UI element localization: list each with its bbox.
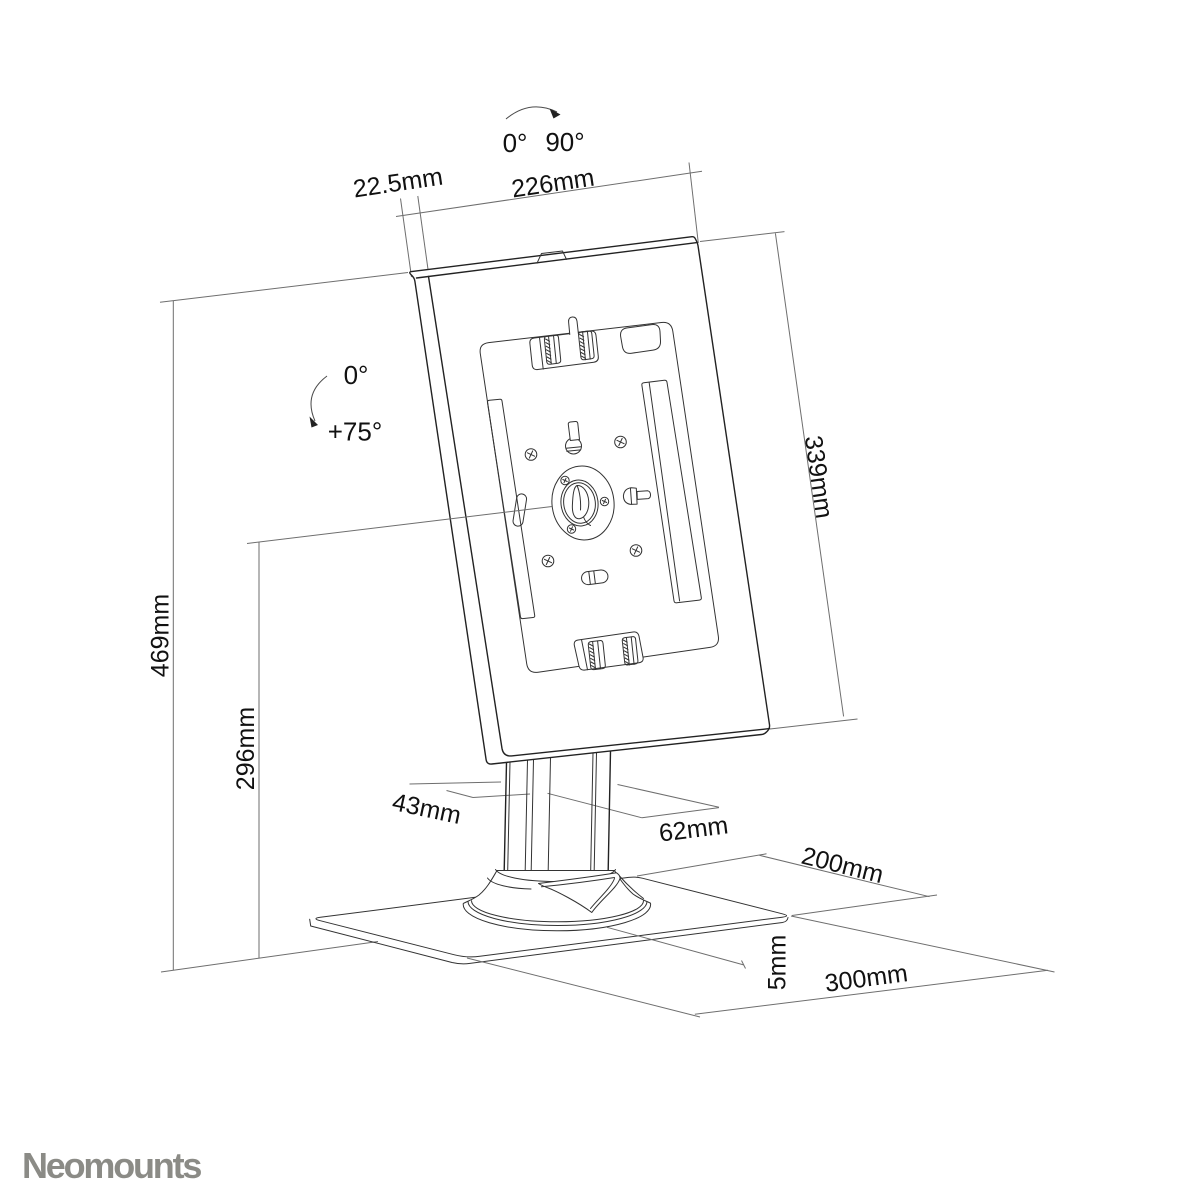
svg-text:0°: 0° [503,128,528,158]
svg-text:Neomounts: Neomounts [22,1145,201,1186]
svg-text:90°: 90° [545,127,584,157]
svg-text:296mm: 296mm [232,707,260,790]
svg-text:5mm: 5mm [764,935,792,991]
svg-text:0°: 0° [344,360,369,390]
svg-text:+75°: +75° [328,417,383,447]
svg-text:469mm: 469mm [147,594,175,677]
